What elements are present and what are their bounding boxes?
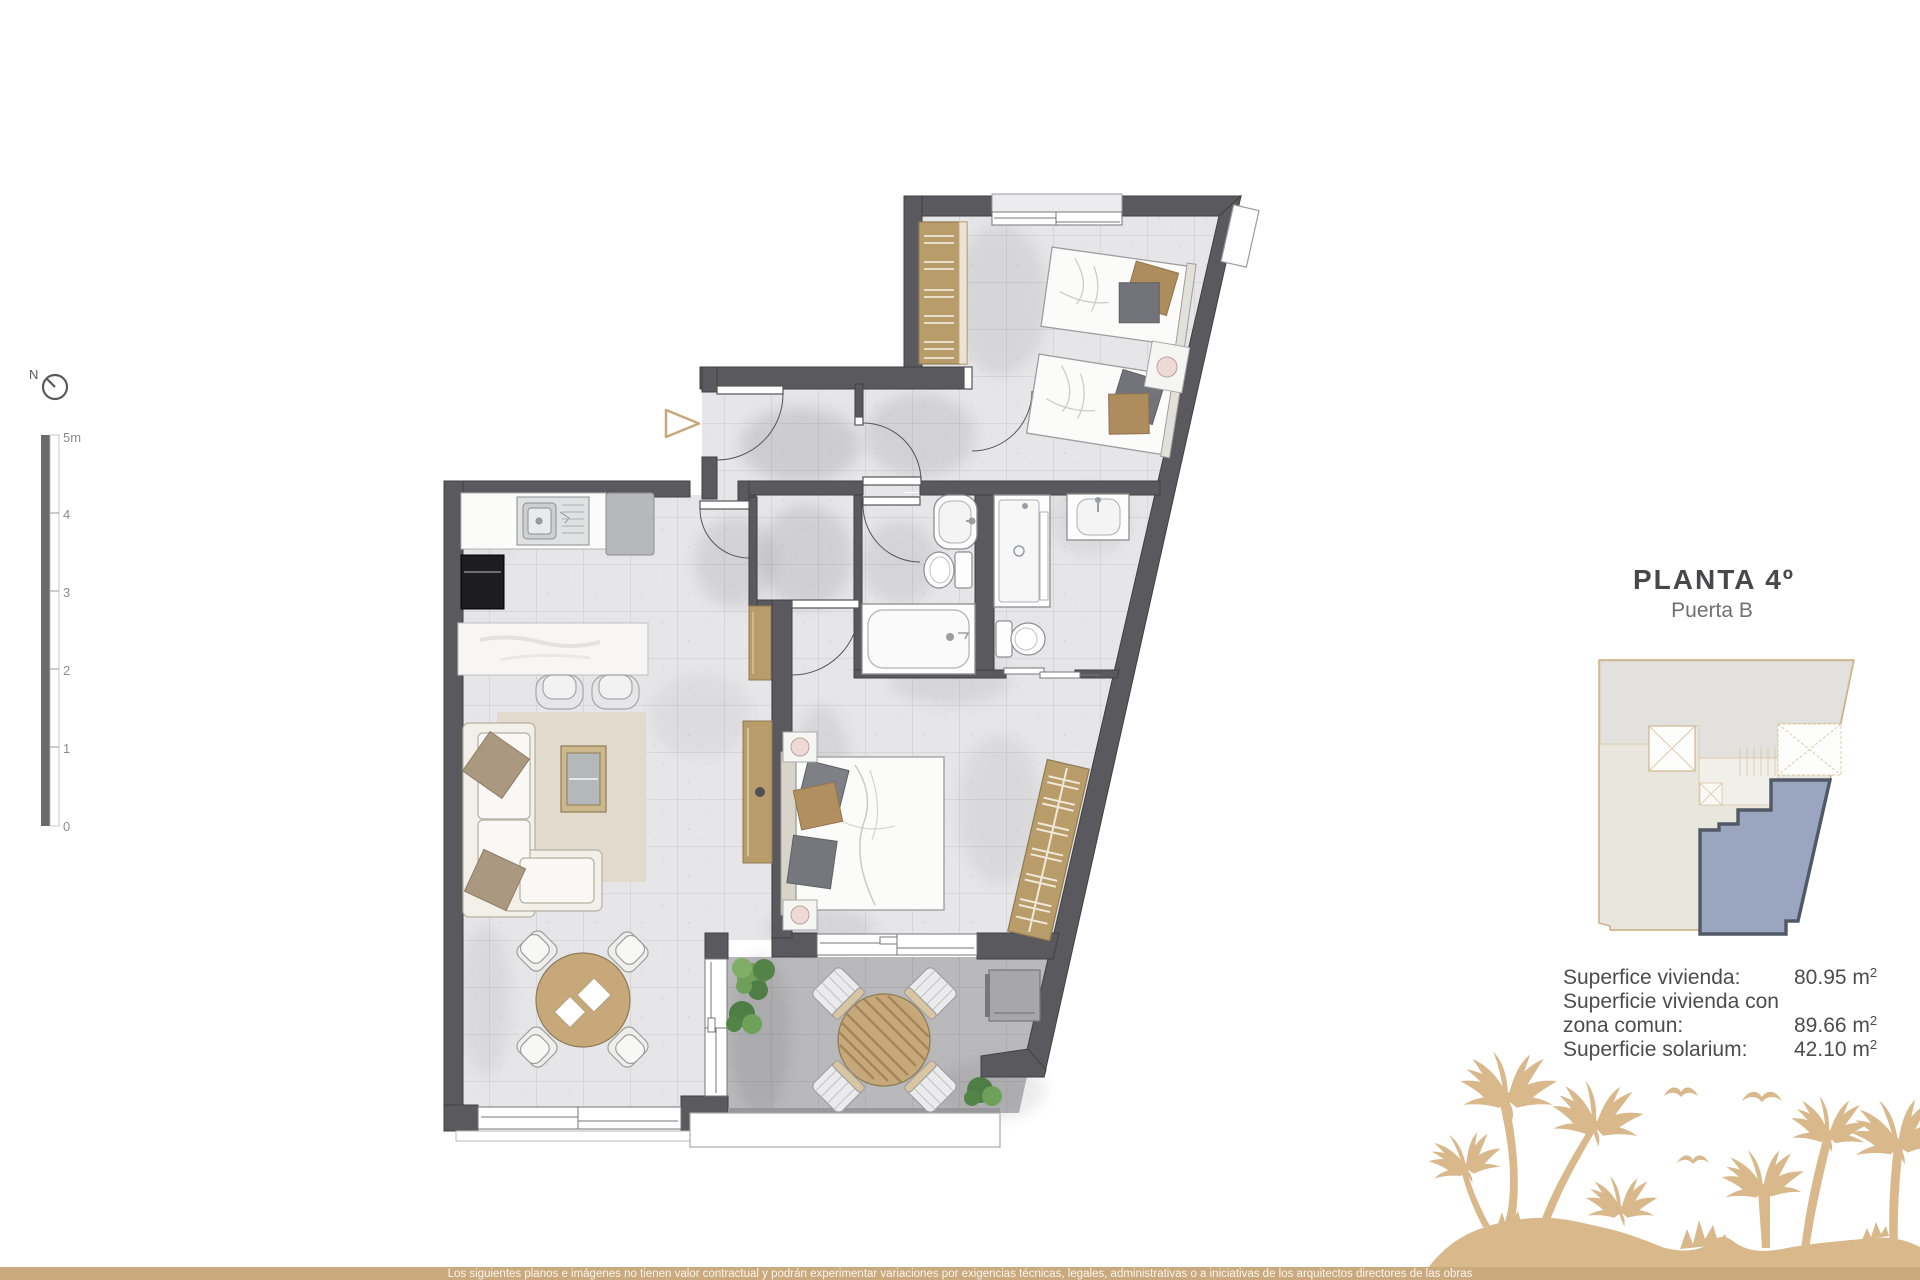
- svg-text:89.66 m2: 89.66 m2: [1794, 1013, 1877, 1037]
- svg-text:80.95 m2: 80.95 m2: [1794, 965, 1877, 989]
- svg-text:5m: 5m: [63, 430, 81, 445]
- svg-text:42.10 m2: 42.10 m2: [1794, 1037, 1877, 1061]
- svg-text:Superfice vivienda:: Superfice vivienda:: [1563, 966, 1740, 989]
- svg-text:PLANTA 4º: PLANTA 4º: [1633, 564, 1795, 595]
- svg-text:zona comun:: zona comun:: [1563, 1014, 1683, 1037]
- svg-text:Puerta B: Puerta B: [1671, 599, 1753, 622]
- svg-text:Superficie vivienda con: Superficie vivienda con: [1563, 990, 1779, 1013]
- svg-text:0: 0: [63, 819, 70, 834]
- svg-text:4: 4: [63, 507, 70, 522]
- svg-text:Los siguientes planos e imágen: Los siguientes planos e imágenes no tien…: [448, 1268, 1473, 1280]
- svg-text:3: 3: [63, 585, 70, 600]
- svg-text:Superficie solarium:: Superficie solarium:: [1563, 1038, 1747, 1061]
- svg-text:1: 1: [63, 741, 70, 756]
- svg-text:2: 2: [63, 663, 70, 678]
- svg-text:N: N: [29, 367, 38, 382]
